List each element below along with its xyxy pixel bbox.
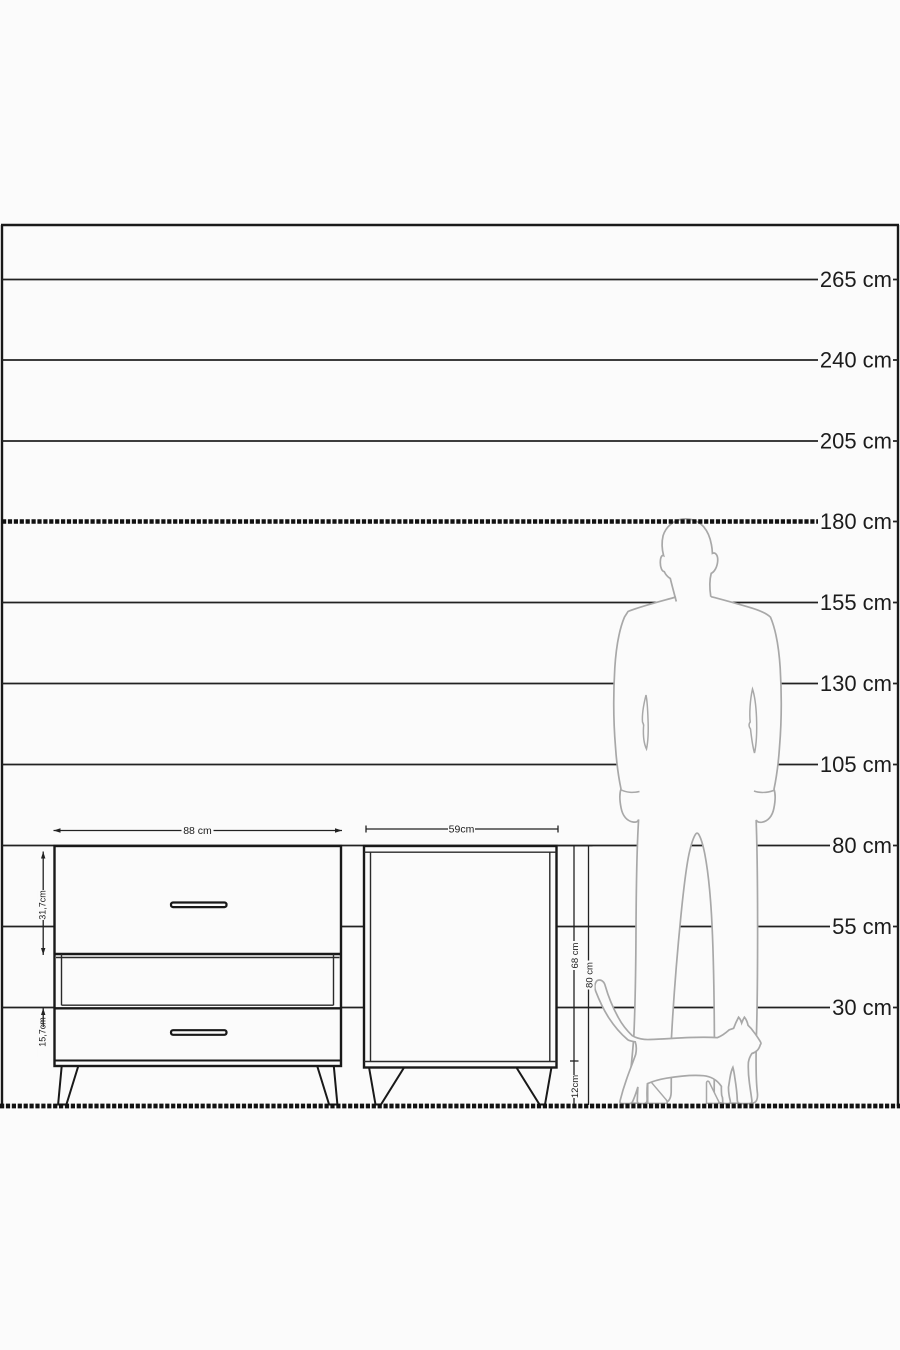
svg-text:265 cm: 265 cm bbox=[820, 267, 892, 292]
svg-text:240 cm: 240 cm bbox=[820, 348, 892, 373]
svg-text:31,7cm: 31,7cm bbox=[38, 890, 48, 920]
svg-text:80 cm: 80 cm bbox=[832, 833, 892, 858]
svg-text:105 cm: 105 cm bbox=[820, 752, 892, 777]
svg-text:180 cm: 180 cm bbox=[820, 509, 892, 534]
svg-text:205 cm: 205 cm bbox=[820, 429, 892, 454]
svg-text:59cm: 59cm bbox=[449, 824, 475, 836]
svg-text:130 cm: 130 cm bbox=[820, 671, 892, 696]
svg-text:88 cm: 88 cm bbox=[183, 825, 212, 837]
svg-text:15,7cm: 15,7cm bbox=[38, 1017, 48, 1047]
svg-text:55 cm: 55 cm bbox=[832, 914, 892, 939]
svg-text:12cm: 12cm bbox=[570, 1075, 581, 1098]
svg-text:68 cm: 68 cm bbox=[570, 942, 581, 968]
svg-text:30 cm: 30 cm bbox=[832, 995, 892, 1020]
svg-text:155 cm: 155 cm bbox=[820, 590, 892, 615]
svg-text:80 cm: 80 cm bbox=[584, 962, 595, 988]
